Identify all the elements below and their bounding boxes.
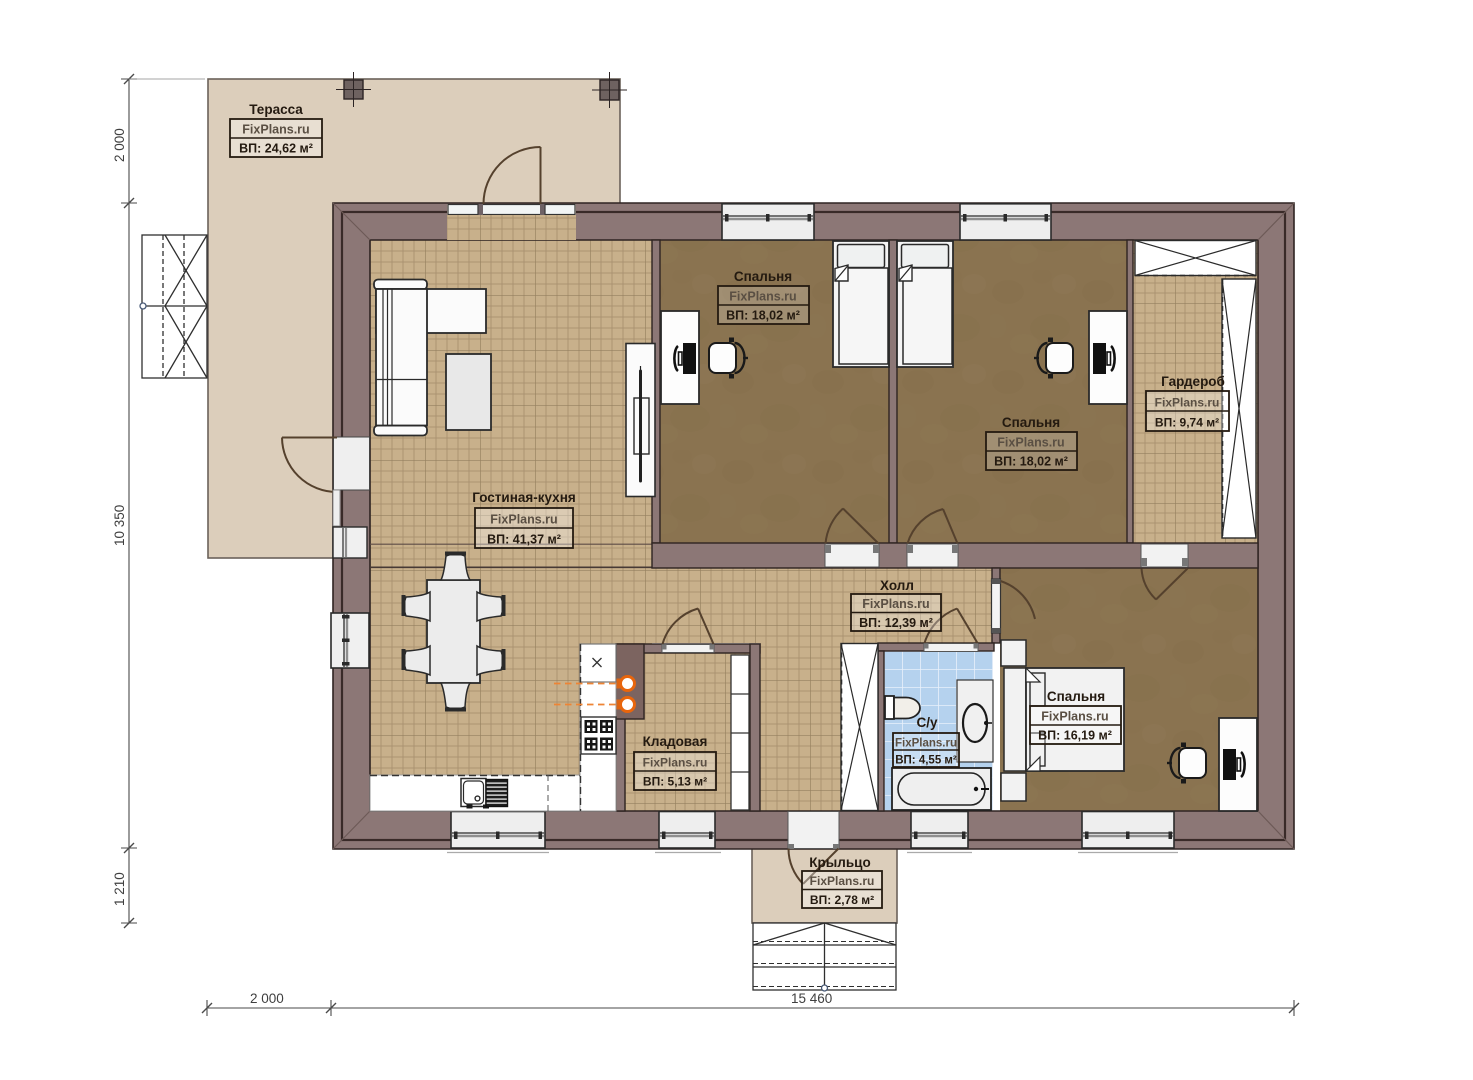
svg-text:FixPlans.ru: FixPlans.ru [729, 290, 796, 304]
svg-text:FixPlans.ru: FixPlans.ru [1155, 396, 1220, 410]
svg-text:ВП: 18,02 м²: ВП: 18,02 м² [994, 455, 1068, 469]
svg-text:FixPlans.ru: FixPlans.ru [242, 123, 309, 137]
svg-text:ВП: 41,37 м²: ВП: 41,37 м² [487, 533, 561, 547]
svg-text:1 210: 1 210 [112, 872, 127, 906]
svg-text:ВП: 12,39 м²: ВП: 12,39 м² [859, 616, 933, 630]
svg-text:ВП: 18,02 м²: ВП: 18,02 м² [726, 309, 800, 323]
svg-text:ВП: 24,62 м²: ВП: 24,62 м² [239, 142, 313, 156]
svg-text:15 460: 15 460 [791, 991, 832, 1006]
svg-text:Терасса: Терасса [249, 102, 303, 117]
svg-text:FixPlans.ru: FixPlans.ru [643, 756, 708, 770]
svg-text:ВП: 16,19 м²: ВП: 16,19 м² [1038, 729, 1112, 743]
svg-text:Гостиная-кухня: Гостиная-кухня [472, 490, 575, 505]
svg-text:ВП: 9,74 м²: ВП: 9,74 м² [1155, 416, 1219, 430]
svg-text:FixPlans.ru: FixPlans.ru [895, 738, 957, 750]
svg-text:С/у: С/у [916, 715, 938, 730]
svg-text:Спальня: Спальня [1002, 415, 1060, 430]
svg-text:10 350: 10 350 [112, 505, 127, 546]
svg-text:Спальня: Спальня [1047, 689, 1105, 704]
svg-text:FixPlans.ru: FixPlans.ru [810, 874, 875, 888]
svg-text:FixPlans.ru: FixPlans.ru [997, 436, 1064, 450]
svg-text:Кладовая: Кладовая [643, 734, 708, 749]
svg-text:FixPlans.ru: FixPlans.ru [862, 597, 929, 611]
svg-text:2 000: 2 000 [250, 991, 284, 1006]
svg-text:ВП: 2,78 м²: ВП: 2,78 м² [810, 893, 874, 907]
svg-text:Гардероб: Гардероб [1161, 374, 1225, 389]
svg-text:Крыльцо: Крыльцо [809, 855, 870, 870]
svg-text:Холл: Холл [880, 578, 914, 593]
svg-text:FixPlans.ru: FixPlans.ru [1041, 710, 1108, 724]
svg-text:2 000: 2 000 [112, 128, 127, 162]
svg-text:Спальня: Спальня [734, 269, 792, 284]
svg-text:FixPlans.ru: FixPlans.ru [490, 513, 557, 527]
svg-text:ВП: 5,13 м²: ВП: 5,13 м² [643, 775, 707, 789]
svg-text:ВП: 4,55 м²: ВП: 4,55 м² [895, 755, 957, 767]
